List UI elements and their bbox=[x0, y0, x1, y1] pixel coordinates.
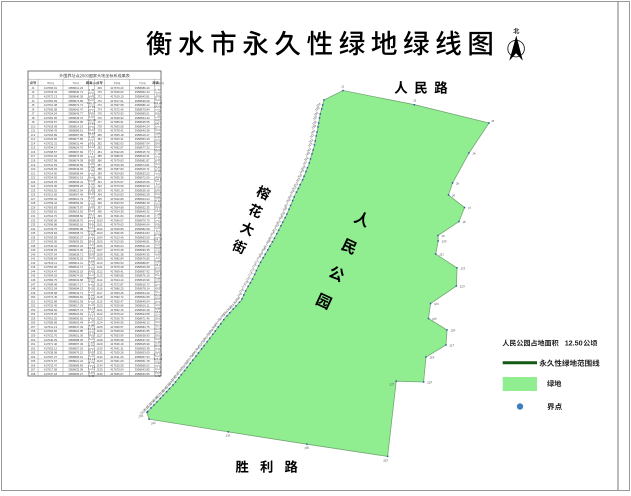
svg-text:Y(m): Y(m) bbox=[72, 81, 79, 85]
svg-text:J18: J18 bbox=[429, 355, 435, 360]
svg-text:J26: J26 bbox=[450, 328, 456, 333]
svg-text:Y(m): Y(m) bbox=[139, 81, 146, 85]
svg-text:J25: J25 bbox=[432, 317, 438, 322]
svg-text:J27: J27 bbox=[389, 382, 395, 387]
svg-text:X(m): X(m) bbox=[47, 81, 54, 85]
svg-text:J20: J20 bbox=[441, 239, 447, 244]
svg-text:(m): (m) bbox=[159, 81, 164, 85]
svg-text:J29: J29 bbox=[383, 458, 389, 463]
svg-text:J3: J3 bbox=[491, 119, 495, 123]
svg-text:6.43: 6.43 bbox=[89, 374, 95, 378]
svg-text:12.50: 12.50 bbox=[565, 339, 583, 348]
svg-text:(m): (m) bbox=[93, 81, 98, 85]
svg-text:3958633.55: 3958633.55 bbox=[135, 372, 150, 376]
svg-text:1.72: 1.72 bbox=[155, 374, 161, 378]
svg-text:J2: J2 bbox=[413, 99, 417, 103]
svg-text:J68: J68 bbox=[31, 372, 36, 376]
svg-text:J22: J22 bbox=[460, 266, 466, 271]
svg-text:J19: J19 bbox=[427, 380, 433, 385]
svg-text:3958665.27: 3958665.27 bbox=[68, 372, 83, 376]
svg-text:J21: J21 bbox=[439, 252, 445, 257]
svg-text:J17: J17 bbox=[449, 343, 455, 348]
svg-text:417665.67: 417665.67 bbox=[110, 372, 124, 376]
svg-text:J30: J30 bbox=[304, 445, 310, 450]
svg-text:J24: J24 bbox=[434, 302, 440, 307]
svg-text:417637.18: 417637.18 bbox=[44, 372, 58, 376]
svg-text:J23: J23 bbox=[459, 284, 465, 289]
svg-text:X(m): X(m) bbox=[114, 81, 121, 85]
svg-text:J136: J136 bbox=[96, 372, 103, 376]
svg-text:J1: J1 bbox=[341, 85, 345, 89]
svg-text:J32: J32 bbox=[151, 421, 157, 426]
svg-text:J31: J31 bbox=[225, 433, 231, 438]
